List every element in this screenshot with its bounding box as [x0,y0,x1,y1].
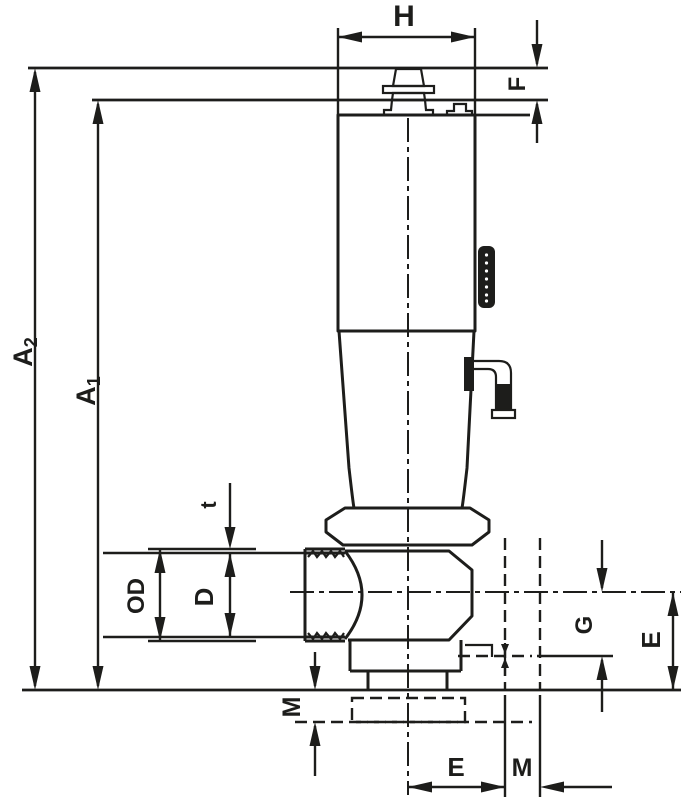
arrow-down-icon [225,613,236,637]
arrow-right-icon [451,32,475,43]
dimension-a1-label: A1 [71,376,104,406]
dimension-d-label: D [189,588,219,607]
arrow-down-icon [668,666,679,690]
valve-dimension-drawing: H F A2 A1 t OD D [0,0,686,800]
arrow-right-icon [481,782,505,793]
reference-lines [22,28,681,797]
dimension-g: G [571,540,608,712]
dimension-h-label: H [393,0,415,33]
arrow-down-icon [597,568,608,592]
technical-drawing: H F A2 A1 t OD D [0,0,686,800]
dimension-a1: A1 [71,100,104,690]
dimension-m-left-label: M [278,697,306,718]
side-port-arrow-down-icon [501,644,509,654]
dimension-e-bottom: E [408,752,505,793]
arrow-up-icon [30,68,41,92]
dimension-m-bottom: M [512,754,612,793]
taper-left-edge [339,331,354,508]
dimension-a2-label: A2 [8,337,41,367]
dimension-e-right-label: E [636,631,666,648]
side-bracket [464,357,515,418]
dimension-m-bottom-label: M [512,754,533,782]
arrow-left-icon [540,782,564,793]
dimension-t: t [196,483,236,549]
arrow-left-icon [408,782,432,793]
side-port-arrow-up-icon [501,658,509,668]
dimension-od: OD [123,549,166,641]
dimension-t-label: t [196,501,221,509]
arrow-down-icon [310,666,321,690]
dimension-d: D [189,553,236,637]
dimension-f: F [504,20,543,143]
dimension-od-label: OD [123,578,150,614]
dimension-e-bottom-label: E [447,752,464,782]
arrow-down-icon [532,44,543,68]
dimension-g-label: G [571,616,598,635]
dimension-a2: A2 [8,68,41,690]
arrow-up-icon [668,592,679,616]
stem-knob [393,69,424,86]
cap-base [384,100,433,115]
arrow-down-icon [30,666,41,690]
dimension-m-left: M [278,652,321,776]
dimension-h: H [338,0,475,43]
arrow-down-icon [93,666,104,690]
indicator-rib [447,104,472,115]
hidden-geometry [295,538,540,722]
arrow-left-icon [338,32,362,43]
arrow-down-icon [225,527,236,549]
dimension-f-label: F [504,77,531,92]
handle-body [338,115,475,331]
bottom-steps [350,640,461,690]
arrow-up-icon [93,100,104,124]
arrow-up-icon [225,553,236,577]
part-outline [305,69,515,690]
body-sphere-arc [345,551,362,639]
dimension-e-right: E [636,592,679,690]
